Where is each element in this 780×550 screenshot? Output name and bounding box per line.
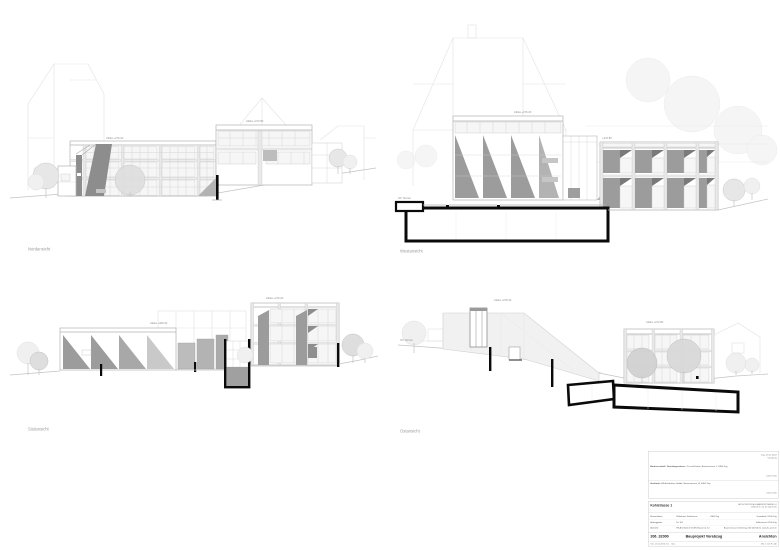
owner-label: Bauherrschaft / Grundeigentümer: xyxy=(650,465,685,467)
row-value2: 6300 Zug xyxy=(710,515,719,517)
owner-text: Ort und Datum, Baarerstrasse 1, 6300 Zug xyxy=(686,465,727,467)
approval-block: Zug, 23.11.2022 Vorabzug Bauherrschaft /… xyxy=(648,451,779,498)
elevation-annotation: Attika +476.20 xyxy=(266,296,284,300)
underground-section xyxy=(396,202,608,241)
title-block: Zug, 23.11.2022 Vorabzug Bauherrschaft /… xyxy=(648,451,780,546)
view-label-ostansicht: Ostansicht xyxy=(400,429,420,434)
architect-label: Architekt: xyxy=(650,482,660,484)
elevation-annotation: Attika +478.40 xyxy=(494,298,512,302)
footer-right: Mst. 1:100 Fo. A0 xyxy=(761,543,777,545)
mid-connector xyxy=(563,136,597,200)
plan-sheet: Attika +476.20 Attika +472.80 xyxy=(0,0,780,550)
project-title: Kohlstrasse 1 xyxy=(650,504,672,508)
office-address: ARCHITEKTEN AG BAARERSTRASSE 14 6300 ZUG… xyxy=(738,503,776,508)
elevation-east-drawing: Attika +478.40 Attika +472.80 OK Terrain xyxy=(396,283,774,435)
project-row: Architekt HS Architekten GmbH, Baarerstr… xyxy=(648,525,778,531)
row-value: Wohnhaus Kohlstrasse xyxy=(676,515,697,517)
stepped-blocks xyxy=(178,335,228,372)
project-block: Kohlstrasse 1 ARCHITEKTEN AG BAARERSTRAS… xyxy=(648,501,779,546)
plan-title: Ansichten xyxy=(759,534,777,538)
elevation-annotation: Attika +476.20 xyxy=(106,136,124,140)
architect-text: HS Architekten GmbH, Baarerstrasse 14, 6… xyxy=(661,482,710,484)
row-right: Kohlstrasse 1/100 Zug xyxy=(756,521,777,523)
row-value: Nr. 101 xyxy=(676,521,683,523)
sawtooth-building xyxy=(60,328,176,376)
elevation-south-drawing: Attika +476.20 Attika +469.40 xyxy=(8,283,380,435)
elevation-annotation: OK Terrain xyxy=(398,196,411,200)
owner-signature-label: Unterschrift xyxy=(766,475,776,477)
right-building xyxy=(600,142,718,210)
tall-building xyxy=(251,303,339,367)
large-mass xyxy=(443,308,624,387)
approval-date: Zug, 23.11.2022 Vorabzug xyxy=(761,453,777,459)
elevation-west-drawing: Attika +476.20 +472.80 OK Terrain xyxy=(396,8,774,250)
row-label: Bauvorhaben xyxy=(650,515,662,517)
elevation-annotation: +472.80 xyxy=(602,136,612,140)
elevation-annotation: Attika +472.80 xyxy=(246,119,264,123)
trees-right xyxy=(726,353,759,375)
elevation-annotation: Attika +472.80 xyxy=(646,320,664,324)
row-right: Grundbuch 1/100 Zug xyxy=(757,515,777,517)
right-wing xyxy=(216,125,312,185)
elevation-north-drawing: Attika +476.20 Attika +472.80 xyxy=(8,8,380,248)
trees-left xyxy=(402,321,444,353)
view-label-nordansicht: Nordansicht xyxy=(28,247,50,252)
view-label-suedansicht: Südansicht xyxy=(28,427,49,432)
plan-number: 206_32000 xyxy=(650,534,668,538)
elevation-annotation: Attika +476.20 xyxy=(514,110,532,114)
side-structure xyxy=(58,166,76,196)
view-label-westansicht: Westansicht xyxy=(400,249,423,254)
row-right: Baarerstrasse 1/100 Zug, 041 000 00 00, … xyxy=(724,527,777,529)
architect-signature-label: Unterschrift xyxy=(766,492,776,494)
owner-row: Bauherrschaft / Grundeigentümer: Ort und… xyxy=(650,465,776,467)
right-building xyxy=(624,329,714,383)
plan-phase: Bauprojekt Vorabzug xyxy=(686,534,723,538)
elevation-annotation: OK Terrain xyxy=(400,338,413,342)
elevation-annotation: Attika +469.40 xyxy=(150,321,168,325)
trees-left xyxy=(17,342,48,375)
row-label: Auftraggeber xyxy=(650,521,662,523)
row-label: Architekt xyxy=(650,527,658,529)
footer-left: Gez. 23.11.2022 mm Geä. xyxy=(650,543,675,545)
section-shaft xyxy=(224,339,250,388)
left-building-sawtooth xyxy=(453,116,563,200)
row-value: HS Architekten GmbH, Baarerstr. 14 xyxy=(676,527,709,529)
architect-row: Architekt: HS Architekten GmbH, Baarerst… xyxy=(650,482,776,484)
